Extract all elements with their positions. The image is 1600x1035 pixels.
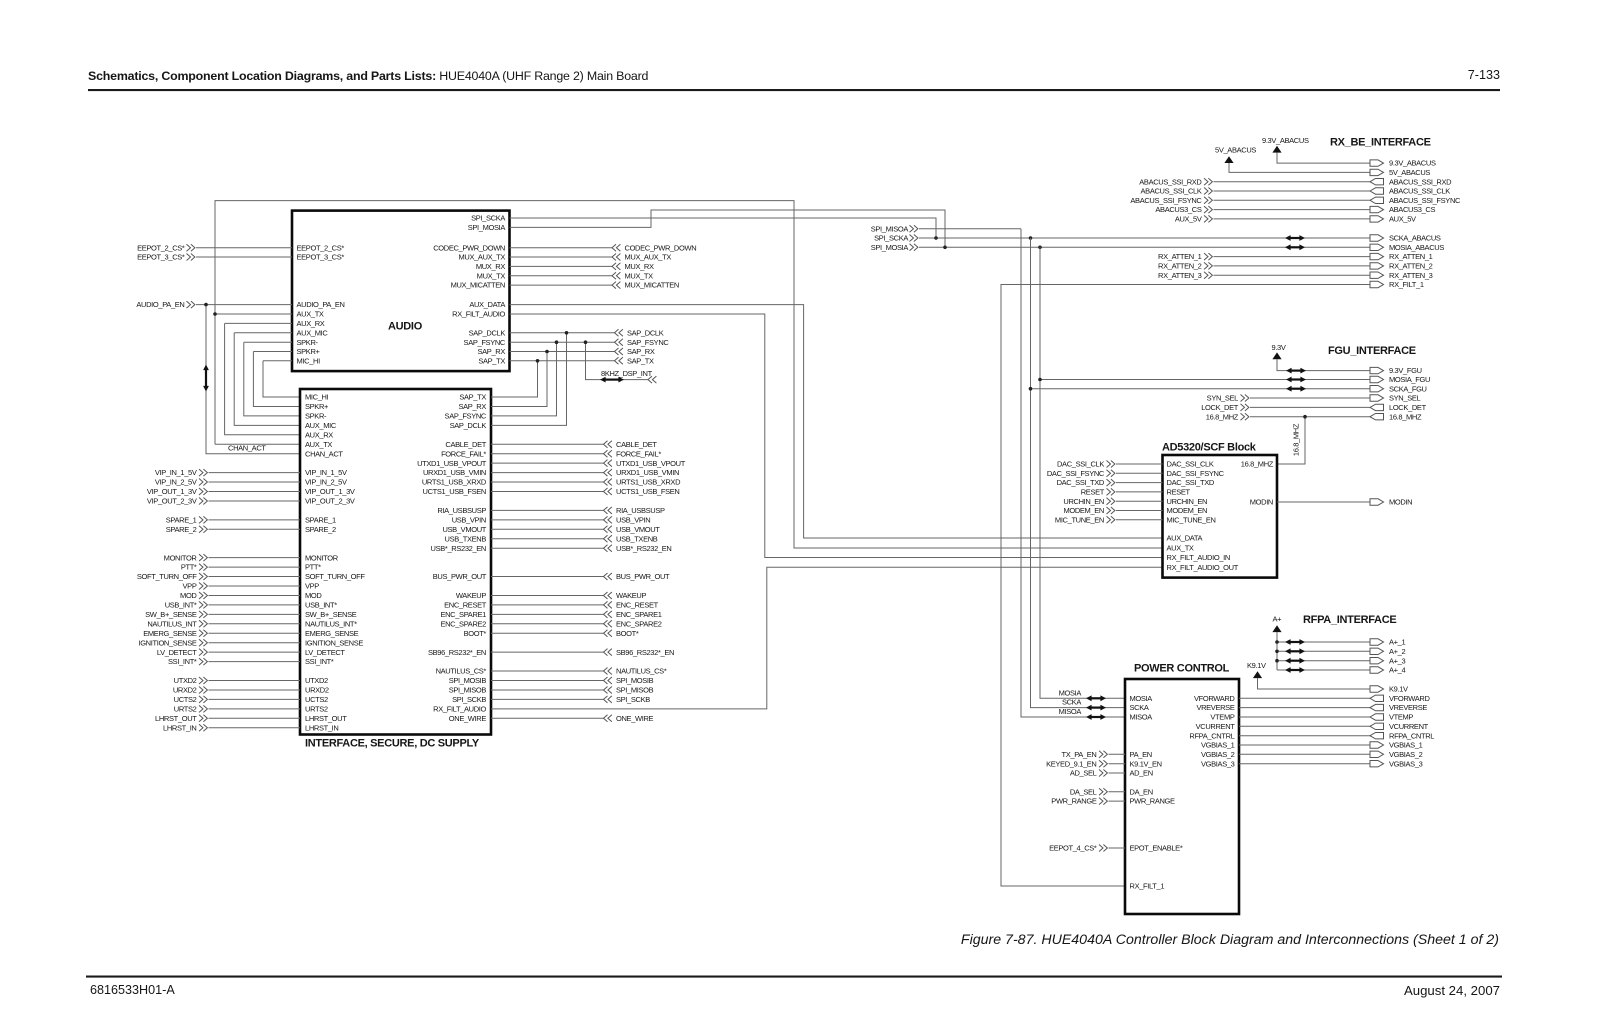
svg-text:16.8_MHZ: 16.8_MHZ xyxy=(1241,460,1274,469)
svg-text:MODEM_EN: MODEM_EN xyxy=(1063,506,1104,515)
svg-text:FGU_INTERFACE: FGU_INTERFACE xyxy=(1328,345,1416,357)
svg-text:VREVERSE: VREVERSE xyxy=(1196,703,1234,712)
svg-text:PWR_RANGE: PWR_RANGE xyxy=(1051,797,1097,806)
svg-text:BOOT*: BOOT* xyxy=(616,629,639,638)
svg-text:9.3V_FGU: 9.3V_FGU xyxy=(1389,366,1422,375)
svg-text:5V_ABACUS: 5V_ABACUS xyxy=(1215,146,1256,155)
svg-text:ENC_SPARE2: ENC_SPARE2 xyxy=(616,619,662,628)
svg-text:SPARE_1: SPARE_1 xyxy=(166,515,197,524)
svg-text:A+_4: A+_4 xyxy=(1389,666,1406,675)
svg-text:LHRST_OUT: LHRST_OUT xyxy=(305,714,347,723)
svg-text:RX_FILT_1: RX_FILT_1 xyxy=(1389,280,1424,289)
svg-text:SCKA_ABACUS: SCKA_ABACUS xyxy=(1389,234,1441,243)
svg-text:A+_2: A+_2 xyxy=(1389,647,1406,656)
svg-text:VGBIAS_2: VGBIAS_2 xyxy=(1201,750,1235,759)
svg-text:UCTS1_USB_FSEN: UCTS1_USB_FSEN xyxy=(423,487,486,496)
svg-text:EEPOT_2_CS*: EEPOT_2_CS* xyxy=(297,243,345,252)
svg-text:UCTS2: UCTS2 xyxy=(174,695,197,704)
svg-text:AUX_TX: AUX_TX xyxy=(305,440,332,449)
svg-text:SB96_RS232*_EN: SB96_RS232*_EN xyxy=(428,648,486,657)
svg-text:IGNITION_SENSE: IGNITION_SENSE xyxy=(138,638,196,647)
svg-text:AUX_5V: AUX_5V xyxy=(1175,215,1202,224)
svg-text:VREVERSE: VREVERSE xyxy=(1389,703,1427,712)
svg-text:SPARE_1: SPARE_1 xyxy=(305,515,336,524)
svg-text:5V_ABACUS: 5V_ABACUS xyxy=(1389,168,1430,177)
svg-text:DAC_SSI_TXD: DAC_SSI_TXD xyxy=(1057,478,1105,487)
svg-text:ENC_SPARE2: ENC_SPARE2 xyxy=(440,619,486,628)
svg-text:PWR_RANGE: PWR_RANGE xyxy=(1130,797,1176,806)
svg-text:CHAN_ACT: CHAN_ACT xyxy=(228,444,266,453)
svg-text:NAUTILUS_INT: NAUTILUS_INT xyxy=(147,619,197,628)
svg-text:USB*_RS232_EN: USB*_RS232_EN xyxy=(616,544,671,553)
svg-text:RX_FILT_AUDIO: RX_FILT_AUDIO xyxy=(452,310,505,319)
svg-text:SPKR-: SPKR- xyxy=(297,338,319,347)
svg-text:MOSIA_FGU: MOSIA_FGU xyxy=(1389,375,1430,384)
svg-text:EEPOT_4_CS*: EEPOT_4_CS* xyxy=(1049,844,1097,853)
svg-text:RX_FILT_1: RX_FILT_1 xyxy=(1130,882,1165,891)
svg-text:PTT*: PTT* xyxy=(181,563,197,572)
svg-text:SOFT_TURN_OFF: SOFT_TURN_OFF xyxy=(137,572,197,581)
svg-text:AUX_RX: AUX_RX xyxy=(297,319,325,328)
svg-text:RX_FILT_AUDIO_IN: RX_FILT_AUDIO_IN xyxy=(1167,553,1230,562)
svg-text:VIP_IN_1_5V: VIP_IN_1_5V xyxy=(155,468,197,477)
svg-text:VTEMP: VTEMP xyxy=(1389,713,1413,722)
svg-text:VPP: VPP xyxy=(305,582,319,591)
svg-text:SCKA: SCKA xyxy=(1062,698,1081,707)
svg-text:RESET: RESET xyxy=(1167,488,1191,497)
svg-text:FORCE_FAIL*: FORCE_FAIL* xyxy=(441,449,486,458)
svg-text:VGBIAS_1: VGBIAS_1 xyxy=(1201,741,1235,750)
svg-text:A+_1: A+_1 xyxy=(1389,638,1406,647)
svg-text:Figure 7-87. HUE4040A Controll: Figure 7-87. HUE4040A Controller Block D… xyxy=(961,932,1499,948)
svg-text:SPKR-: SPKR- xyxy=(305,412,327,421)
svg-text:SYN_SEL: SYN_SEL xyxy=(1207,394,1238,403)
svg-text:ENC_SPARE1: ENC_SPARE1 xyxy=(440,610,486,619)
svg-text:SPKR+: SPKR+ xyxy=(297,347,321,356)
svg-text:ABACUS_SSI_RXD: ABACUS_SSI_RXD xyxy=(1389,177,1452,186)
svg-text:URCHIN_EN: URCHIN_EN xyxy=(1167,497,1208,506)
svg-text:SPI_SCKA: SPI_SCKA xyxy=(471,214,505,223)
svg-text:RX_ATTEN_1: RX_ATTEN_1 xyxy=(1158,252,1202,261)
svg-text:RESET: RESET xyxy=(1081,488,1105,497)
svg-text:AUX_5V: AUX_5V xyxy=(1389,215,1416,224)
svg-text:MIC_TUNE_EN: MIC_TUNE_EN xyxy=(1167,515,1216,524)
svg-text:NAUTILUS_CS*: NAUTILUS_CS* xyxy=(616,667,667,676)
svg-text:SAP_RX: SAP_RX xyxy=(478,347,506,356)
svg-text:9.3V: 9.3V xyxy=(1272,343,1286,352)
svg-text:AUDIO_PA_EN: AUDIO_PA_EN xyxy=(297,300,345,309)
svg-text:URXD1_USB_VMIN: URXD1_USB_VMIN xyxy=(423,468,486,477)
svg-text:DAC_SSI_FSYNC: DAC_SSI_FSYNC xyxy=(1167,469,1225,478)
svg-text:SW_B+_SENSE: SW_B+_SENSE xyxy=(145,610,197,619)
svg-text:MIC_HI: MIC_HI xyxy=(297,356,321,365)
svg-text:VPP: VPP xyxy=(183,582,197,591)
svg-text:ABACUS_SSI_CLK: ABACUS_SSI_CLK xyxy=(1389,187,1450,196)
svg-text:SPI_MISOA: SPI_MISOA xyxy=(871,224,909,233)
svg-text:MONITOR: MONITOR xyxy=(305,553,339,562)
svg-text:SCKA_FGU: SCKA_FGU xyxy=(1389,384,1427,393)
svg-text:URCHIN_EN: URCHIN_EN xyxy=(1063,497,1104,506)
svg-text:AUX_MIC: AUX_MIC xyxy=(297,328,329,337)
svg-text:EPOT_ENABLE*: EPOT_ENABLE* xyxy=(1130,844,1183,853)
svg-text:AUX_TX: AUX_TX xyxy=(297,310,324,319)
svg-text:DAC_SSI_CLK: DAC_SSI_CLK xyxy=(1167,460,1214,469)
svg-text:DA_SEL: DA_SEL xyxy=(1070,787,1097,796)
svg-text:RFPA_CNTRL: RFPA_CNTRL xyxy=(1189,731,1234,740)
svg-text:A+: A+ xyxy=(1273,615,1283,624)
svg-text:SSI_INT*: SSI_INT* xyxy=(305,657,334,666)
svg-text:8KHZ_DSP_INT: 8KHZ_DSP_INT xyxy=(601,369,653,378)
svg-text:USB*_RS232_EN: USB*_RS232_EN xyxy=(431,544,486,553)
svg-text:URTS2: URTS2 xyxy=(174,704,197,713)
svg-text:LHRST_IN: LHRST_IN xyxy=(305,723,338,732)
svg-text:RX_FILT_AUDIO: RX_FILT_AUDIO xyxy=(433,704,486,713)
svg-text:SSI_INT*: SSI_INT* xyxy=(168,657,197,666)
svg-text:RX_ATTEN_2: RX_ATTEN_2 xyxy=(1389,262,1433,271)
svg-text:AUDIO_PA_EN: AUDIO_PA_EN xyxy=(136,300,184,309)
svg-text:ONE_WIRE: ONE_WIRE xyxy=(616,714,654,723)
svg-text:MOD: MOD xyxy=(305,591,322,600)
svg-text:SAP_TX: SAP_TX xyxy=(459,393,486,402)
svg-text:IGNITION_SENSE: IGNITION_SENSE xyxy=(305,638,363,647)
svg-text:UCTS2: UCTS2 xyxy=(305,695,328,704)
svg-text:AD5320/SCF Block: AD5320/SCF Block xyxy=(1162,442,1257,454)
svg-text:VGBIAS_1: VGBIAS_1 xyxy=(1389,741,1423,750)
svg-text:MOSIA: MOSIA xyxy=(1059,688,1082,697)
svg-text:RX_FILT_AUDIO_OUT: RX_FILT_AUDIO_OUT xyxy=(1167,563,1239,572)
svg-text:URTS1_USB_XRXD: URTS1_USB_XRXD xyxy=(422,478,487,487)
svg-text:SPI_MOSIB: SPI_MOSIB xyxy=(616,676,654,685)
svg-text:FORCE_FAIL*: FORCE_FAIL* xyxy=(616,449,661,458)
svg-text:AUX_TX: AUX_TX xyxy=(1167,544,1194,553)
svg-text:NAUTILUS_CS*: NAUTILUS_CS* xyxy=(436,667,487,676)
svg-text:MUX_TX: MUX_TX xyxy=(625,271,654,280)
svg-text:URXD1_USB_VMIN: URXD1_USB_VMIN xyxy=(616,468,679,477)
svg-text:MOSIA: MOSIA xyxy=(1130,694,1153,703)
svg-text:CHAN_ACT: CHAN_ACT xyxy=(305,449,343,458)
svg-text:VIP_IN_1_5V: VIP_IN_1_5V xyxy=(305,468,347,477)
svg-text:ENC_SPARE1: ENC_SPARE1 xyxy=(616,610,662,619)
svg-text:SPI_MOSIA: SPI_MOSIA xyxy=(468,223,506,232)
svg-text:SAP_RX: SAP_RX xyxy=(627,347,655,356)
svg-text:USB_VMOUT: USB_VMOUT xyxy=(616,525,660,534)
svg-text:9.3V_ABACUS: 9.3V_ABACUS xyxy=(1389,159,1436,168)
svg-text:16.8_MHZ: 16.8_MHZ xyxy=(1206,412,1239,421)
svg-text:SAP_TX: SAP_TX xyxy=(627,356,654,365)
svg-text:EEPOT_3_CS*: EEPOT_3_CS* xyxy=(297,253,345,262)
svg-text:KEYED_9.1_EN: KEYED_9.1_EN xyxy=(1046,759,1096,768)
svg-text:LV_DETECT: LV_DETECT xyxy=(305,648,345,657)
svg-text:SPARE_2: SPARE_2 xyxy=(166,525,197,534)
svg-text:USB_INT*: USB_INT* xyxy=(305,601,337,610)
svg-text:SPARE_2: SPARE_2 xyxy=(305,525,336,534)
svg-text:K9.1V: K9.1V xyxy=(1247,661,1266,670)
svg-text:SPI_MISOB: SPI_MISOB xyxy=(616,686,654,695)
svg-text:ENC_RESET: ENC_RESET xyxy=(616,601,659,610)
svg-text:SPI_MISOB: SPI_MISOB xyxy=(449,686,487,695)
svg-text:URTS1_USB_XRXD: URTS1_USB_XRXD xyxy=(616,478,681,487)
svg-text:SPI_MOSIA: SPI_MOSIA xyxy=(871,243,909,252)
svg-text:MUX_AUX_TX: MUX_AUX_TX xyxy=(458,253,505,262)
svg-text:DAC_SSI_TXD: DAC_SSI_TXD xyxy=(1167,478,1215,487)
svg-text:RFPA_INTERFACE: RFPA_INTERFACE xyxy=(1303,614,1396,626)
svg-text:UTXD1_USB_VPOUT: UTXD1_USB_VPOUT xyxy=(417,459,487,468)
svg-text:LOCK_DET: LOCK_DET xyxy=(1201,403,1239,412)
svg-text:USB_VMOUT: USB_VMOUT xyxy=(442,525,486,534)
svg-text:RIA_USBSUSP: RIA_USBSUSP xyxy=(616,506,665,515)
svg-text:ONE_WIRE: ONE_WIRE xyxy=(449,714,487,723)
svg-text:16.8_MHZ: 16.8_MHZ xyxy=(1389,412,1422,421)
svg-text:AUX_DATA: AUX_DATA xyxy=(469,300,505,309)
svg-text:SAP_DCLK: SAP_DCLK xyxy=(627,328,664,337)
svg-text:UTXD1_USB_VPOUT: UTXD1_USB_VPOUT xyxy=(616,459,686,468)
svg-text:RIA_USBSUSP: RIA_USBSUSP xyxy=(437,506,486,515)
svg-text:RX_ATTEN_2: RX_ATTEN_2 xyxy=(1158,262,1202,271)
svg-text:USB_TXENB: USB_TXENB xyxy=(616,534,658,543)
svg-text:USB_VPIN: USB_VPIN xyxy=(616,515,650,524)
svg-text:MIC_TUNE_EN: MIC_TUNE_EN xyxy=(1055,515,1104,524)
svg-text:ABACUS_SSI_RXD: ABACUS_SSI_RXD xyxy=(1139,177,1202,186)
svg-text:SAP_FSYNC: SAP_FSYNC xyxy=(627,338,669,347)
svg-text:ABACUS3_CS: ABACUS3_CS xyxy=(1389,205,1435,214)
svg-text:CABLE_DET: CABLE_DET xyxy=(445,440,486,449)
svg-text:LHRST_IN: LHRST_IN xyxy=(163,723,196,732)
svg-text:Schematics, Component Location: Schematics, Component Location Diagrams,… xyxy=(88,69,649,83)
svg-text:SAP_DCLK: SAP_DCLK xyxy=(450,421,487,430)
svg-text:URXD2: URXD2 xyxy=(173,686,197,695)
svg-text:A+_3: A+_3 xyxy=(1389,656,1406,665)
svg-text:16.8_MHZ: 16.8_MHZ xyxy=(1292,423,1301,456)
svg-text:MUX_TX: MUX_TX xyxy=(477,271,506,280)
svg-text:VFORWARD: VFORWARD xyxy=(1389,694,1430,703)
svg-text:VIP_IN_2_5V: VIP_IN_2_5V xyxy=(155,478,197,487)
svg-text:BUS_PWR_OUT: BUS_PWR_OUT xyxy=(433,572,487,581)
svg-text:AD_SEL: AD_SEL xyxy=(1070,769,1097,778)
svg-text:BUS_PWR_OUT: BUS_PWR_OUT xyxy=(616,572,670,581)
svg-text:URTS2: URTS2 xyxy=(305,704,328,713)
svg-text:EEPOT_3_CS*: EEPOT_3_CS* xyxy=(137,253,185,262)
svg-text:RX_ATTEN_1: RX_ATTEN_1 xyxy=(1389,252,1433,261)
svg-text:K9.1V_EN: K9.1V_EN xyxy=(1130,759,1162,768)
svg-text:VIP_OUT_1_3V: VIP_OUT_1_3V xyxy=(305,487,355,496)
svg-text:VCURRENT: VCURRENT xyxy=(1196,722,1236,731)
svg-text:DA_EN: DA_EN xyxy=(1130,787,1153,796)
svg-text:MUX_MICATTEN: MUX_MICATTEN xyxy=(625,281,679,290)
svg-text:MODIN: MODIN xyxy=(1389,498,1412,507)
svg-text:TX_PA_EN: TX_PA_EN xyxy=(1062,750,1097,759)
svg-text:MODIN: MODIN xyxy=(1250,498,1273,507)
svg-text:EMERG_SENSE: EMERG_SENSE xyxy=(305,629,359,638)
svg-text:SAP_FSYNC: SAP_FSYNC xyxy=(464,338,506,347)
svg-text:K9.1V: K9.1V xyxy=(1389,685,1408,694)
svg-text:AUX_RX: AUX_RX xyxy=(305,430,333,439)
svg-text:MONITOR: MONITOR xyxy=(164,553,198,562)
svg-text:LV_DETECT: LV_DETECT xyxy=(157,648,197,657)
svg-text:MISOA: MISOA xyxy=(1130,713,1153,722)
svg-text:UTXD2: UTXD2 xyxy=(174,676,197,685)
svg-text:ABACUS_SSI_FSYNC: ABACUS_SSI_FSYNC xyxy=(1130,196,1202,205)
svg-text:AD_EN: AD_EN xyxy=(1130,769,1153,778)
svg-text:AUX_DATA: AUX_DATA xyxy=(1167,534,1203,543)
svg-text:WAKEUP: WAKEUP xyxy=(616,591,646,600)
svg-text:SAP_TX: SAP_TX xyxy=(478,356,505,365)
svg-text:VFORWARD: VFORWARD xyxy=(1194,694,1235,703)
svg-text:UCTS1_USB_FSEN: UCTS1_USB_FSEN xyxy=(616,487,679,496)
svg-text:VIP_IN_2_5V: VIP_IN_2_5V xyxy=(305,478,347,487)
svg-text:EMERG_SENSE: EMERG_SENSE xyxy=(143,629,197,638)
svg-text:RX_ATTEN_3: RX_ATTEN_3 xyxy=(1389,271,1433,280)
svg-text:6816533H01-A: 6816533H01-A xyxy=(90,983,175,997)
svg-text:MUX_RX: MUX_RX xyxy=(625,262,655,271)
svg-text:MISOA: MISOA xyxy=(1059,707,1082,716)
svg-text:CABLE_DET: CABLE_DET xyxy=(616,440,657,449)
svg-text:MUX_AUX_TX: MUX_AUX_TX xyxy=(625,253,672,262)
svg-text:USB_TXENB: USB_TXENB xyxy=(445,534,487,543)
svg-text:MODEM_EN: MODEM_EN xyxy=(1167,506,1208,515)
svg-text:SPI_MOSIB: SPI_MOSIB xyxy=(449,676,487,685)
svg-text:LHRST_OUT: LHRST_OUT xyxy=(155,714,197,723)
svg-text:CODEC_PWR_DOWN: CODEC_PWR_DOWN xyxy=(433,243,505,252)
svg-text:MIC_HI: MIC_HI xyxy=(305,393,329,402)
svg-text:INTERFACE, SECURE, DC SUPPLY: INTERFACE, SECURE, DC SUPPLY xyxy=(305,738,480,750)
svg-text:RX_ATTEN_3: RX_ATTEN_3 xyxy=(1158,271,1202,280)
svg-text:PTT*: PTT* xyxy=(305,563,321,572)
svg-text:SPI_SCKA: SPI_SCKA xyxy=(874,234,908,243)
svg-text:SAP_RX: SAP_RX xyxy=(459,402,487,411)
svg-text:ABACUS_SSI_CLK: ABACUS_SSI_CLK xyxy=(1141,187,1202,196)
svg-text:BOOT*: BOOT* xyxy=(464,629,487,638)
svg-text:POWER CONTROL: POWER CONTROL xyxy=(1134,663,1230,675)
svg-text:MOSIA_ABACUS: MOSIA_ABACUS xyxy=(1389,243,1444,252)
svg-text:VIP_OUT_1_3V: VIP_OUT_1_3V xyxy=(147,487,197,496)
svg-text:SOFT_TURN_OFF: SOFT_TURN_OFF xyxy=(305,572,365,581)
svg-text:SCKA: SCKA xyxy=(1130,703,1149,712)
svg-text:SPI_SCKB: SPI_SCKB xyxy=(452,695,486,704)
svg-text:VCURRENT: VCURRENT xyxy=(1389,722,1429,731)
svg-text:LOCK_DET: LOCK_DET xyxy=(1389,403,1427,412)
svg-text:ABACUS3_CS: ABACUS3_CS xyxy=(1155,205,1201,214)
svg-text:7-133: 7-133 xyxy=(1468,68,1500,82)
svg-text:MUX_RX: MUX_RX xyxy=(476,262,506,271)
svg-text:WAKEUP: WAKEUP xyxy=(456,591,486,600)
svg-text:VTEMP: VTEMP xyxy=(1210,713,1234,722)
svg-text:DAC_SSI_FSYNC: DAC_SSI_FSYNC xyxy=(1047,469,1105,478)
svg-text:EEPOT_2_CS*: EEPOT_2_CS* xyxy=(137,243,185,252)
svg-text:RX_BE_INTERFACE: RX_BE_INTERFACE xyxy=(1330,137,1431,149)
svg-text:August 24, 2007: August 24, 2007 xyxy=(1404,983,1500,998)
svg-text:NAUTILUS_INT*: NAUTILUS_INT* xyxy=(305,619,357,628)
svg-text:VGBIAS_3: VGBIAS_3 xyxy=(1201,759,1235,768)
svg-text:MOD: MOD xyxy=(180,591,197,600)
svg-text:MUX_MICATTEN: MUX_MICATTEN xyxy=(451,281,505,290)
svg-text:9.3V_ABACUS: 9.3V_ABACUS xyxy=(1262,136,1309,145)
svg-text:VGBIAS_2: VGBIAS_2 xyxy=(1389,750,1423,759)
svg-text:VIP_OUT_2_3V: VIP_OUT_2_3V xyxy=(305,497,355,506)
svg-text:VGBIAS_3: VGBIAS_3 xyxy=(1389,759,1423,768)
svg-text:SAP_DCLK: SAP_DCLK xyxy=(469,328,506,337)
svg-text:SPKR+: SPKR+ xyxy=(305,402,329,411)
svg-text:RFPA_CNTRL: RFPA_CNTRL xyxy=(1389,731,1434,740)
svg-text:PA_EN: PA_EN xyxy=(1130,750,1152,759)
svg-text:AUX_MIC: AUX_MIC xyxy=(305,421,337,430)
svg-text:AUDIO: AUDIO xyxy=(388,321,423,333)
svg-text:SW_B+_SENSE: SW_B+_SENSE xyxy=(305,610,357,619)
svg-text:SYN_SEL: SYN_SEL xyxy=(1389,394,1420,403)
svg-text:USB_VPIN: USB_VPIN xyxy=(452,515,486,524)
svg-text:UTXD2: UTXD2 xyxy=(305,676,328,685)
svg-text:SAP_FSYNC: SAP_FSYNC xyxy=(445,412,487,421)
svg-text:SB96_RS232*_EN: SB96_RS232*_EN xyxy=(616,648,674,657)
svg-text:USB_INT*: USB_INT* xyxy=(165,601,197,610)
svg-text:CODEC_PWR_DOWN: CODEC_PWR_DOWN xyxy=(625,243,697,252)
svg-text:ENC_RESET: ENC_RESET xyxy=(444,601,487,610)
svg-text:DAC_SSI_CLK: DAC_SSI_CLK xyxy=(1057,460,1104,469)
svg-text:URXD2: URXD2 xyxy=(305,686,329,695)
svg-text:ABACUS_SSI_FSYNC: ABACUS_SSI_FSYNC xyxy=(1389,196,1461,205)
svg-text:SPI_SCKB: SPI_SCKB xyxy=(616,695,650,704)
svg-text:VIP_OUT_2_3V: VIP_OUT_2_3V xyxy=(147,497,197,506)
